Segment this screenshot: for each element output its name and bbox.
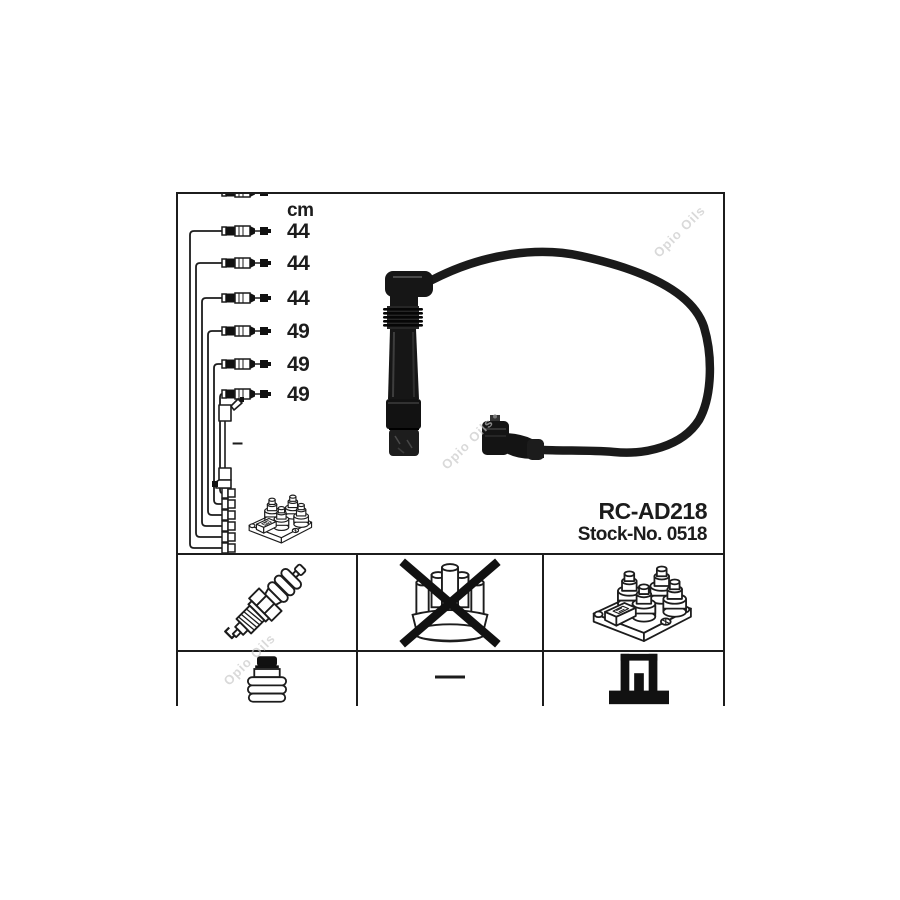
cable-leads — [190, 231, 224, 548]
right-angle-boot — [482, 415, 544, 461]
length-unit-header: cm — [287, 200, 313, 222]
legend-cell-not-applicable: — — [358, 652, 544, 706]
cable-length-value: 44 — [287, 287, 309, 311]
main-cable-photo — [383, 252, 710, 460]
product-image: cm 44 44 44 49 49 49 – RC-AD218 Stock-No… — [0, 0, 900, 900]
cable-length-value: 44 — [287, 220, 309, 244]
cable-length-value: 44 — [287, 252, 309, 276]
ignition-coil-drawing — [249, 495, 311, 543]
stock-number: Stock-No. 0518 — [578, 524, 707, 546]
cable-length-value: 49 — [287, 383, 309, 407]
part-number: RC-AD218 — [599, 498, 707, 525]
distributor-cap-icon — [394, 558, 506, 648]
ignition-coil-icon — [579, 560, 707, 646]
pencil-boot — [383, 271, 433, 456]
connector-sleeve-icon — [609, 653, 669, 705]
legend-cell-terminal-nut — [178, 652, 358, 706]
legend-cell-distributor-cap — [358, 555, 544, 652]
content-frame: cm 44 44 44 49 49 49 – RC-AD218 Stock-No… — [176, 192, 725, 706]
cable-wire — [432, 252, 710, 453]
coil-end-connectors — [222, 488, 235, 553]
coil-lead-length-dash: – — [232, 432, 243, 455]
legend-cell-ignition-coil — [544, 555, 723, 652]
legend-cell-spark-plug — [178, 555, 358, 652]
legend-cell-connector-sleeve — [544, 652, 723, 706]
cable-row-glyphs — [222, 194, 271, 399]
cable-length-value: 49 — [287, 320, 309, 344]
legend-grid: — — [178, 553, 723, 706]
terminal-nut-icon — [247, 654, 287, 704]
spark-plug-icon — [194, 558, 340, 648]
dash-symbol: — — [435, 659, 465, 693]
cable-length-value: 49 — [287, 353, 309, 377]
